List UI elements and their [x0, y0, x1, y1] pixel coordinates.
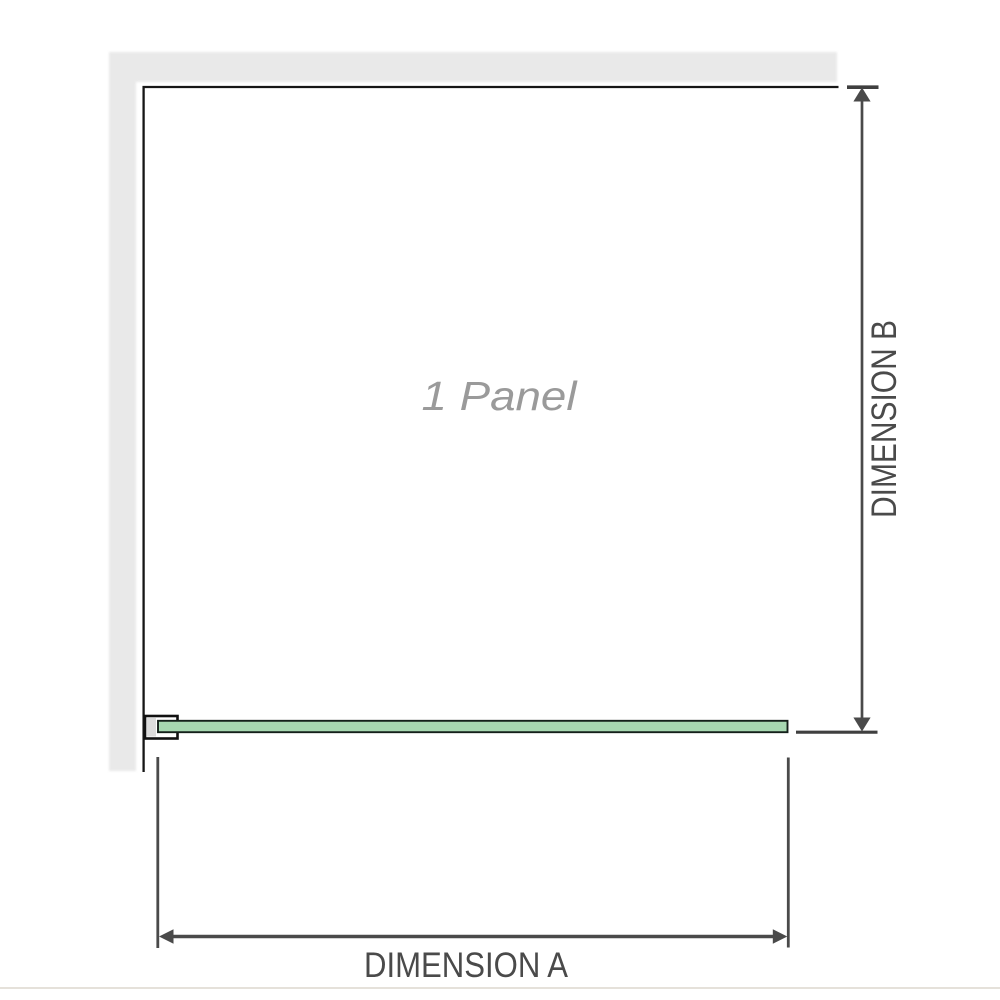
svg-text:1 Panel: 1 Panel	[422, 373, 579, 419]
svg-text:DIMENSION A: DIMENSION A	[364, 945, 568, 985]
svg-text:DIMENSION B: DIMENSION B	[865, 320, 904, 518]
